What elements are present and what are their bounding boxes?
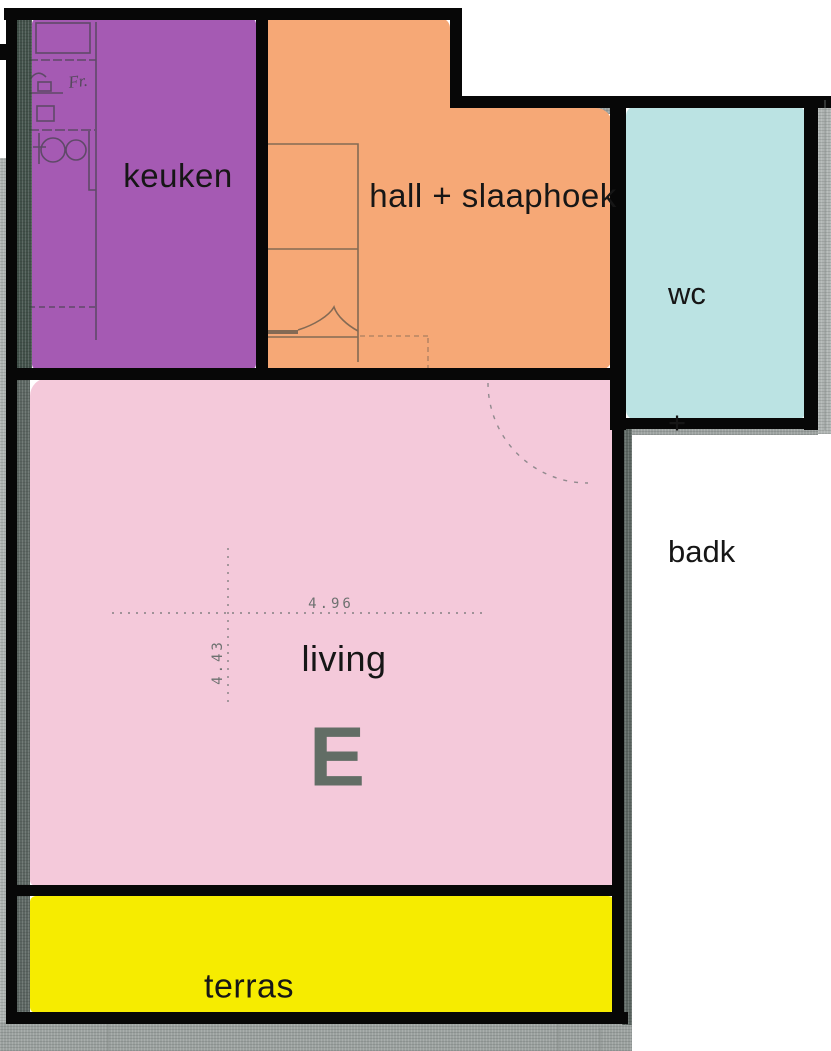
wall-bottom	[6, 1012, 628, 1024]
living-west-wall-strip	[16, 378, 30, 1014]
unit-letter-stamp: E	[309, 709, 365, 806]
terras-label: terras	[204, 968, 294, 1007]
wc-label-line2: +	[668, 401, 735, 444]
wall-wc-right	[804, 96, 818, 430]
wall-keuken-hall	[256, 12, 268, 374]
room-living	[30, 378, 614, 886]
wc-label-line3: badk	[668, 530, 735, 573]
room-hall-upper	[268, 18, 450, 114]
room-hall-lower	[268, 108, 612, 370]
wall-top-right	[450, 96, 831, 108]
room-terras	[30, 896, 614, 1013]
wall-top	[4, 8, 462, 20]
hall-slaaphoek-label: hall + slaaphoek	[369, 177, 616, 215]
wall-living-terras	[6, 885, 618, 896]
wall-mid-horizontal	[6, 368, 625, 380]
bottom-wall-texture-band	[0, 1022, 632, 1051]
kitchen-counter-strip	[16, 20, 32, 370]
keuken-label: keuken	[123, 157, 232, 195]
living-width-dimension: 4.96	[308, 596, 354, 612]
living-label: living	[301, 638, 386, 680]
wall-left	[6, 8, 17, 1024]
wall-step-vertical	[450, 8, 462, 108]
wc-label-line1: wc	[668, 272, 735, 315]
living-depth-dimension: 4.43	[210, 639, 226, 685]
wall-living-right	[612, 374, 624, 1024]
wc-badk-label: wc + badk	[668, 186, 735, 659]
right-wall-texture-strip	[818, 96, 831, 434]
floor-plan: Fr. keuken hall + slaaphoek wc + badk li…	[0, 0, 831, 1051]
